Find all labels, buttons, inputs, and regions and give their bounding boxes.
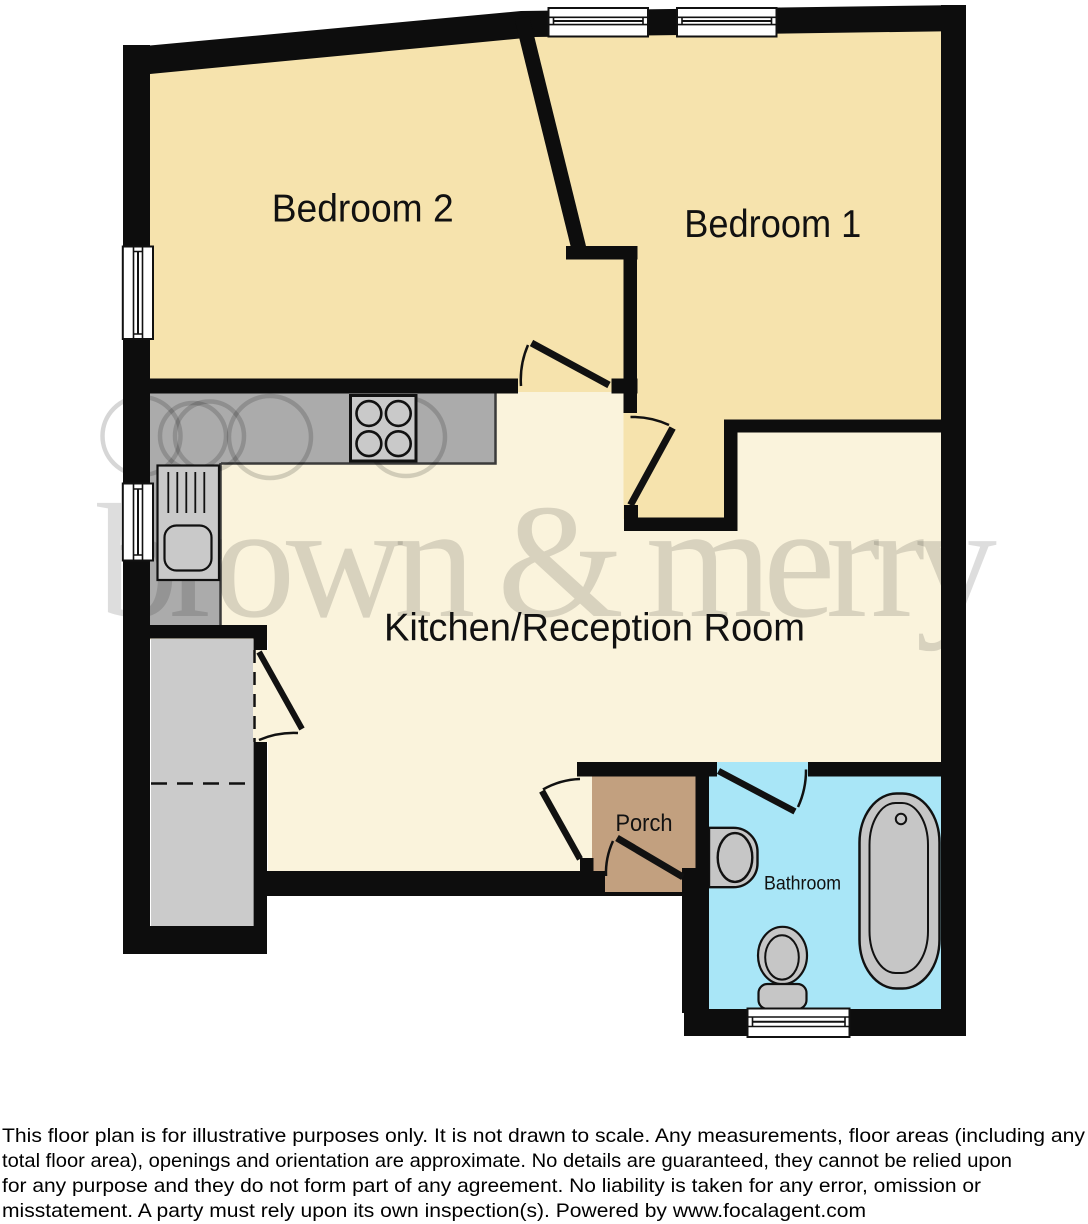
svg-text:total floor area), openings an: total floor area), openings and orientat… bbox=[2, 1150, 1012, 1172]
svg-text:This floor plan is for illustr: This floor plan is for illustrative purp… bbox=[2, 1125, 1085, 1147]
svg-text:Bathroom: Bathroom bbox=[764, 874, 841, 895]
svg-text:Kitchen/Reception Room: Kitchen/Reception Room bbox=[384, 607, 805, 650]
svg-text:Bedroom 2: Bedroom 2 bbox=[272, 188, 454, 231]
svg-text:for any purpose and they do no: for any purpose and they do not form par… bbox=[2, 1175, 982, 1197]
svg-text:misstatement. A party must rel: misstatement. A party must rely upon its… bbox=[2, 1200, 866, 1222]
svg-text:Bedroom 1: Bedroom 1 bbox=[684, 203, 861, 246]
svg-text:Porch: Porch bbox=[616, 810, 673, 837]
